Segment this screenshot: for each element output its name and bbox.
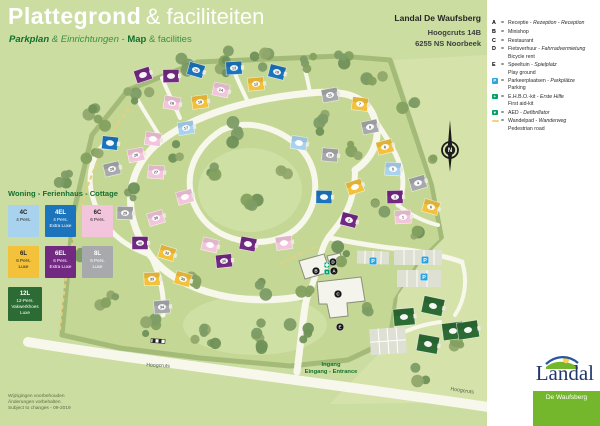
tree	[226, 136, 239, 149]
subtitle-segment: & Einrichtungen	[52, 34, 119, 45]
house-number: 33	[150, 277, 154, 281]
house-number: 18	[198, 100, 203, 104]
inner-lawn	[198, 148, 302, 232]
tree	[142, 330, 149, 337]
legend-text: Fietsverhuur - Fahrradvermietung	[508, 46, 598, 53]
facility-marker-A: A	[330, 267, 338, 275]
tree	[172, 140, 180, 148]
house-marker-4EL	[316, 190, 334, 203]
logo-brand-text: Landal	[536, 361, 594, 386]
page-subtitle: Parkplan & Einrichtungen - Map & facilit…	[9, 34, 192, 45]
tree	[260, 288, 273, 301]
tree	[309, 53, 317, 61]
legend-letter: A	[492, 20, 501, 27]
tree	[247, 200, 258, 211]
facility-marker-C: C	[334, 290, 342, 298]
park-name: Landal De Waufsberg	[394, 13, 481, 23]
svg-text:E: E	[338, 325, 341, 330]
aed-icon: ♥	[492, 110, 498, 116]
tree	[408, 99, 417, 108]
facility-marker-D: D	[329, 258, 337, 266]
tree	[299, 335, 307, 343]
cottage-type-8L: 8L8 Pers.Luxe	[82, 246, 113, 278]
house-marker-8L: 10	[321, 148, 340, 163]
tree	[300, 56, 308, 64]
tree	[99, 120, 111, 132]
legend-item: A=Receptie - Rezeption - Reception	[492, 20, 598, 27]
house-number: 3	[394, 195, 396, 199]
legend-text: E.H.B.O.-kit - Erste Hilfe	[508, 94, 598, 101]
tree	[343, 250, 350, 257]
legend-subtext: Parking	[508, 85, 598, 92]
tree	[284, 318, 297, 331]
house-number: 40	[138, 241, 142, 245]
legend-text: Wandelpad - Wanderweg	[508, 118, 598, 125]
tree	[190, 335, 199, 344]
tree	[340, 53, 347, 60]
tree	[200, 324, 208, 332]
legend-equals: =	[501, 94, 508, 101]
house-marker-6L: 12	[247, 77, 266, 92]
title-main: Plattegrond	[8, 3, 141, 29]
legend-letter: B	[492, 29, 501, 36]
cottage-type-6L: 6L6 Pers.Luxe	[8, 246, 39, 278]
parking-marker: P	[420, 273, 428, 281]
house-marker-6C: 27	[148, 165, 167, 179]
disclaimer: Wijzigingen voorbehouden Änderungen vorb…	[8, 394, 71, 412]
svg-text:P: P	[422, 275, 426, 281]
page-title: Plattegrond & faciliteiten	[8, 3, 264, 30]
tree	[412, 226, 423, 237]
house-number: 5	[392, 167, 394, 171]
house-marker-6EL: 3	[387, 190, 405, 203]
legend-text: AED - Defibrillator	[508, 110, 598, 117]
legend-item: P=Parkeerplaatsen - ParkplätzeParking	[492, 78, 598, 92]
house-marker-12L	[393, 307, 418, 326]
legend-item: C=Restaurant	[492, 38, 598, 45]
subtitle-segment: & facilities	[146, 34, 191, 45]
legend-item: E=Speeltuin - SpielplatzPlay ground	[492, 62, 598, 76]
tree	[371, 199, 379, 207]
house-marker-6EL	[163, 69, 181, 82]
tree	[368, 77, 377, 86]
legend-letter: D	[492, 46, 501, 53]
tree	[256, 318, 265, 327]
compass-label: N	[448, 148, 452, 154]
tree	[144, 87, 154, 97]
tree	[256, 340, 268, 352]
tree	[430, 155, 438, 163]
first-aid-icon: +	[492, 94, 498, 100]
address-street: Hoogcruts 14B	[394, 27, 481, 38]
tree	[140, 316, 152, 328]
tree	[131, 97, 138, 104]
legend-text: Receptie - Rezeption - Reception	[508, 20, 598, 27]
legend-equals: =	[501, 62, 508, 69]
disclaimer-line: Subject to changes - 09-2019	[8, 406, 71, 412]
tree	[210, 162, 219, 171]
tree	[93, 148, 103, 158]
facility-marker-E: E	[336, 323, 344, 331]
house-marker-4C: 5	[385, 162, 404, 176]
house-number: 17	[184, 126, 189, 131]
subtitle-segment: Map	[127, 34, 146, 45]
tree	[251, 328, 262, 339]
tree	[377, 71, 388, 82]
house-number: 1	[402, 215, 404, 219]
tree	[335, 256, 347, 268]
tree	[410, 363, 420, 373]
tree	[276, 165, 287, 176]
legend-item: =Wandelpad - WanderwegPedestrian road	[492, 118, 598, 132]
house-marker-6C: 1	[395, 210, 414, 224]
house-marker-8L: 34	[154, 300, 173, 314]
house-marker-6L: 33	[144, 272, 163, 286]
subtitle-segment: Parkplan	[9, 34, 52, 45]
tree	[255, 280, 265, 290]
legend-equals: =	[501, 110, 508, 117]
legend-item: +=E.H.B.O.-kit - Erste HilfeFirst aid-ki…	[492, 94, 598, 108]
legend-subtext: Bicycle rent	[508, 54, 598, 61]
tree	[306, 285, 315, 294]
tree	[354, 151, 363, 160]
logo-park-name: De Waufsberg	[533, 391, 600, 426]
legend-equals: =	[501, 46, 508, 53]
tree	[65, 170, 73, 178]
svg-text:P: P	[371, 259, 375, 265]
tree	[379, 206, 391, 218]
tree	[54, 177, 65, 188]
legend-text: Restaurant	[508, 38, 598, 45]
cottage-type-4EL: 4EL4 Pers.Extra Luxe	[45, 205, 76, 237]
facilities-legend: A=Receptie - Rezeption - ReceptionB=Mini…	[492, 20, 598, 134]
house-number: 11	[328, 93, 333, 98]
parking-marker: P	[369, 257, 377, 265]
street-label-left: Hoogcruts	[146, 362, 170, 369]
house-number: 26	[134, 153, 139, 158]
house-number: 12	[254, 82, 259, 86]
legend-equals: =	[501, 118, 508, 125]
cottage-type-6C: 6C6 Pers.	[82, 205, 113, 237]
legend-item: ♥=AED - Defibrillator	[492, 110, 598, 117]
legend-letter: C	[492, 38, 501, 45]
facility-marker-B: B	[312, 267, 320, 275]
house-number: 13	[232, 66, 236, 70]
legend-equals: =	[501, 20, 508, 27]
legend-subtext: First aid-kit	[508, 101, 598, 108]
legend-item: B=Minishop	[492, 29, 598, 36]
legend-item: D=Fietsverhuur - FahrradvermietungBicycl…	[492, 46, 598, 60]
parking-marker: P	[421, 256, 429, 264]
cottage-type-12L: 12L12-Pers.VakwerkhoesLuxe	[8, 287, 42, 321]
legend-text: Speeltuin - Spielplatz	[508, 62, 598, 69]
aed-marker: ♥	[324, 269, 330, 275]
svg-text:P: P	[423, 258, 427, 264]
first-aid-marker	[324, 262, 330, 268]
tree	[223, 46, 234, 57]
legend-subtext: Pedestrian road	[508, 126, 598, 133]
tree	[175, 152, 184, 161]
tree	[234, 126, 243, 135]
house-number: 16	[169, 101, 174, 106]
tree	[317, 114, 328, 125]
house-marker-4EL: 13	[226, 61, 245, 75]
tree	[362, 307, 370, 315]
house-number: 27	[154, 170, 159, 174]
legend-text: Minishop	[508, 29, 598, 36]
entrance-label-de-en: Eingang - Entrance	[305, 369, 359, 375]
cottage-type-4C: 4C4 Pers.	[8, 205, 39, 237]
tree	[411, 375, 424, 388]
tree	[259, 48, 271, 60]
legend-text: Parkeerplaatsen - Parkplätze	[508, 78, 598, 85]
address-city: 6255 NS Noorbeek	[394, 38, 481, 49]
cottage-type-6EL: 6EL6 Pers.Extra Luxe	[45, 246, 76, 278]
tree	[81, 153, 93, 165]
legend-equals: =	[501, 29, 508, 36]
legend-subtext: Play ground	[508, 70, 598, 77]
tree	[258, 62, 267, 71]
gate-icon	[151, 339, 165, 344]
entrance-label-nl: Ingang	[322, 362, 341, 368]
house-number: 10	[328, 153, 333, 157]
legend-equals: =	[501, 78, 508, 85]
park-address: Landal De Waufsberg Hoogcruts 14B 6255 N…	[394, 13, 481, 50]
title-subpart: & faciliteiten	[146, 4, 265, 29]
tree	[396, 102, 408, 114]
tree	[303, 64, 312, 73]
tree	[210, 338, 221, 349]
pedestrian-path-icon	[492, 120, 499, 122]
tree	[123, 87, 132, 96]
cottage-legend-title: Woning - Ferienhaus - Cottage	[8, 189, 138, 198]
tree	[316, 127, 325, 136]
tree	[331, 240, 344, 253]
tree	[250, 52, 260, 62]
cottage-legend: Woning - Ferienhaus - Cottage 4C4 Pers.4…	[8, 189, 138, 330]
legend-equals: =	[501, 38, 508, 45]
parking-icon: P	[492, 78, 498, 84]
house-number: 36	[222, 259, 227, 263]
tree	[88, 104, 97, 113]
tree	[295, 286, 307, 298]
landal-logo: Landal De Waufsberg	[487, 345, 600, 426]
legend-letter: E	[492, 62, 501, 69]
